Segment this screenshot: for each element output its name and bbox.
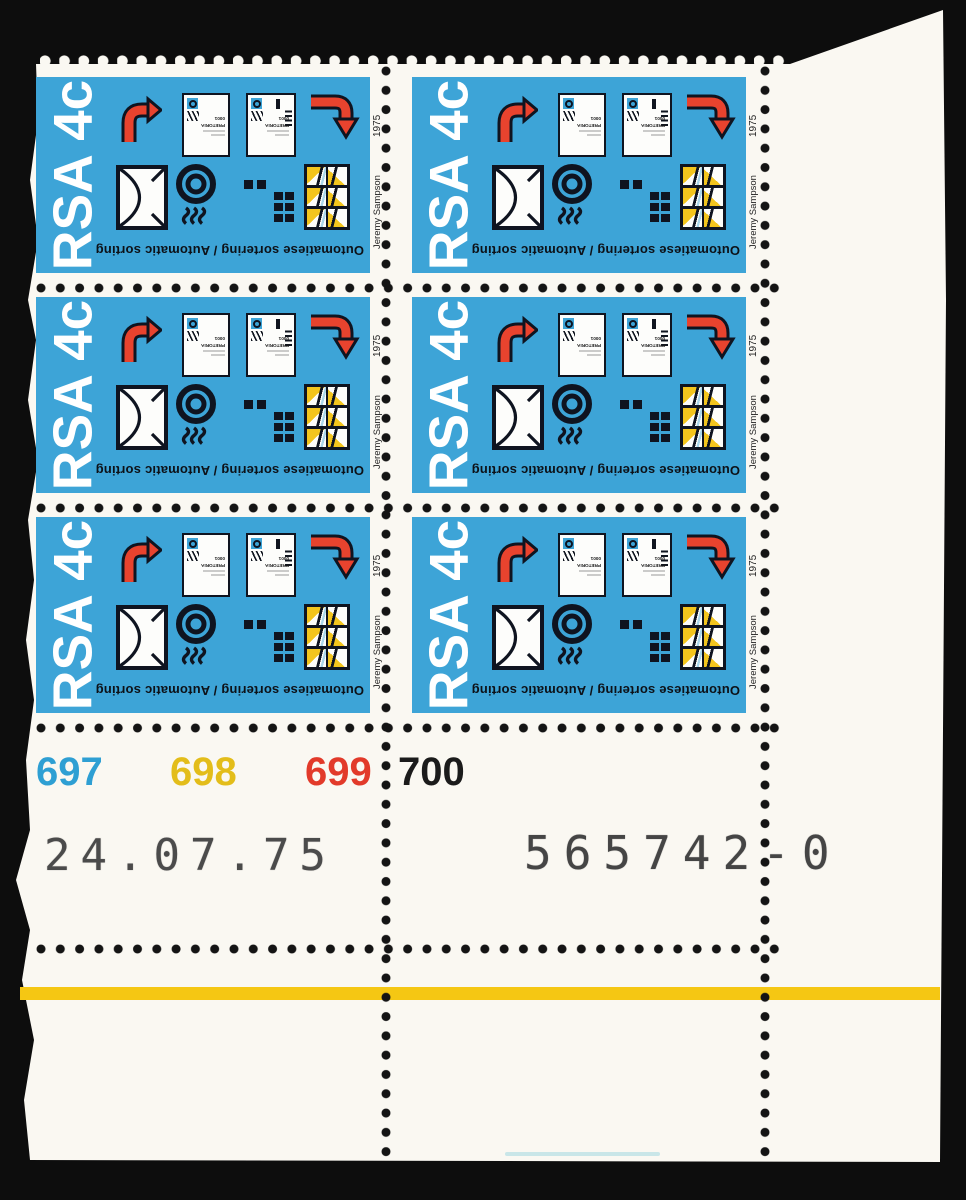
stamp-cell: RSA 4c PRETORIA 0001: [36, 297, 388, 495]
stamp-block: RSA 4c PRETORIA 0001: [0, 0, 966, 1200]
address-line: [651, 355, 665, 357]
addressed-envelope-icon: PRETORIA 0001: [558, 533, 606, 597]
address-line: [651, 135, 665, 137]
plate-number-699: 699: [305, 750, 372, 795]
envelope-address: PRETORIA 0001: [191, 333, 225, 359]
stamp: RSA 4c PRETORIA 0001: [412, 297, 746, 493]
sorting-pigeonhole-icon: [304, 384, 350, 450]
address-line: [579, 131, 601, 133]
plate-number-697: 697: [36, 750, 103, 795]
stamp: RSA 4c PRETORIA 0001: [412, 517, 746, 713]
perforation-row: [36, 944, 784, 954]
envelope-stamp-icon: [563, 98, 574, 109]
address-postal-code: 0001: [204, 556, 225, 561]
envelope-address: PRETORIA 0001: [191, 553, 225, 579]
stamp: RSA 4c PRETORIA 0001: [412, 77, 746, 273]
envelope-stamp-icon: [563, 538, 574, 549]
address-line: [587, 355, 601, 357]
turn-down-arrow-icon: [684, 90, 738, 140]
addressed-envelope-icon: PRETORIA 0001: [558, 93, 606, 157]
envelope-address: PRETORIA 0001: [255, 553, 289, 579]
turn-right-arrow-icon: [494, 90, 538, 144]
stamp: RSA 4c PRETORIA 0001: [36, 77, 370, 273]
stamp-year: 1975: [748, 555, 759, 577]
address-line: [275, 575, 289, 577]
denomination-text: RSA 4c: [416, 300, 480, 491]
turn-right-arrow-icon: [118, 530, 162, 584]
address-line: [267, 131, 289, 133]
address-line: [267, 351, 289, 353]
postmark-target-icon: [174, 384, 222, 448]
sorting-bar-icon: [652, 319, 656, 329]
stamp-denomination: RSA 4c: [420, 517, 476, 713]
coded-envelope-icon: PRETORIA 0001: [246, 533, 296, 597]
stamp: RSA 4c PRETORIA 0001: [36, 297, 370, 493]
envelope-back-icon: [116, 605, 168, 670]
stamp-denomination: RSA 4c: [44, 517, 100, 713]
scanner-background: RSA 4c PRETORIA 0001: [0, 0, 966, 1200]
postmark-target-icon: [174, 604, 222, 668]
stamp-cell: RSA 4c PRETORIA 0001: [412, 297, 764, 495]
address-postal-code: 0001: [268, 556, 289, 561]
postmark-target-icon: [550, 164, 598, 228]
addressed-envelope-icon: PRETORIA 0001: [182, 313, 230, 377]
address-line: [267, 571, 289, 573]
sorting-bar-icon: [652, 539, 656, 549]
address-postal-code: 0001: [580, 336, 601, 341]
envelope-address: PRETORIA 0001: [255, 333, 289, 359]
addressed-envelope-icon: PRETORIA 0001: [182, 93, 230, 157]
envelope-address: PRETORIA 0001: [631, 333, 665, 359]
sorting-bar-icon: [276, 539, 280, 549]
envelope-address: PRETORIA 0001: [631, 553, 665, 579]
address-line: [203, 351, 225, 353]
perforation-row: [36, 503, 784, 513]
address-line: [579, 351, 601, 353]
stamp-year: 1975: [748, 335, 759, 357]
address-city: PRETORIA: [268, 123, 289, 128]
perforation-row: [36, 723, 784, 733]
code-dots-icon: [620, 400, 642, 409]
stamp-cell: RSA 4c PRETORIA 0001: [36, 77, 388, 275]
turn-down-arrow-icon: [684, 310, 738, 360]
postmark-target-icon: [550, 604, 598, 668]
stamp-caption: Outomatiese sortering / Automatic sortin…: [102, 243, 364, 258]
stamp-denomination: RSA 4c: [44, 77, 100, 273]
code-grid-icon: [274, 192, 294, 222]
code-grid-icon: [274, 632, 294, 662]
address-line: [203, 131, 225, 133]
address-line: [643, 351, 665, 353]
turn-down-arrow-icon: [684, 530, 738, 580]
coded-envelope-icon: PRETORIA 0001: [246, 313, 296, 377]
envelope-stamp-icon: [627, 538, 638, 549]
address-city: PRETORIA: [644, 343, 665, 348]
stamp-cell: RSA 4c PRETORIA 0001: [412, 517, 764, 715]
addressed-envelope-icon: PRETORIA 0001: [558, 313, 606, 377]
envelope-back-icon: [492, 385, 544, 450]
envelope-address: PRETORIA 0001: [631, 113, 665, 139]
turn-right-arrow-icon: [118, 310, 162, 364]
address-postal-code: 0001: [580, 116, 601, 121]
coded-envelope-icon: PRETORIA 0001: [622, 533, 672, 597]
stamp-designer: Jeremy Sampson: [748, 175, 759, 249]
sorting-pigeonhole-icon: [680, 604, 726, 670]
envelope-stamp-icon: [187, 318, 198, 329]
address-line: [651, 575, 665, 577]
envelope-address: PRETORIA 0001: [567, 113, 601, 139]
address-city: PRETORIA: [268, 343, 289, 348]
ink-smudge: [505, 1152, 660, 1156]
stamp-caption: Outomatiese sortering / Automatic sortin…: [102, 463, 364, 478]
address-postal-code: 0001: [644, 556, 665, 561]
envelope-address: PRETORIA 0001: [255, 113, 289, 139]
stamp-denomination: RSA 4c: [44, 297, 100, 493]
envelope-stamp-icon: [563, 318, 574, 329]
envelope-stamp-icon: [187, 538, 198, 549]
address-line: [211, 355, 225, 357]
address-city: PRETORIA: [580, 343, 601, 348]
sorting-bar-icon: [276, 99, 280, 109]
address-line: [211, 575, 225, 577]
turn-down-arrow-icon: [308, 530, 362, 580]
sorting-pigeonhole-icon: [680, 164, 726, 230]
denomination-text: RSA 4c: [416, 520, 480, 711]
print-date: 24.07.75: [44, 830, 336, 881]
address-city: PRETORIA: [204, 563, 225, 568]
code-grid-icon: [274, 412, 294, 442]
stamp-designer: Jeremy Sampson: [748, 395, 759, 469]
sorting-pigeonhole-icon: [304, 604, 350, 670]
stamp-denomination: RSA 4c: [420, 77, 476, 273]
address-postal-code: 0001: [204, 116, 225, 121]
address-postal-code: 0001: [644, 336, 665, 341]
address-postal-code: 0001: [644, 116, 665, 121]
cylinder-control-number: 565742-0: [524, 826, 842, 880]
address-line: [275, 355, 289, 357]
address-city: PRETORIA: [644, 123, 665, 128]
envelope-back-icon: [492, 605, 544, 670]
envelope-stamp-icon: [627, 318, 638, 329]
code-grid-icon: [650, 412, 670, 442]
address-line: [211, 135, 225, 137]
turn-right-arrow-icon: [494, 310, 538, 364]
stamp-cell: RSA 4c PRETORIA 0001: [412, 77, 764, 275]
envelope-address: PRETORIA 0001: [567, 333, 601, 359]
envelope-stamp-icon: [251, 98, 262, 109]
code-grid-icon: [650, 192, 670, 222]
envelope-stamp-icon: [627, 98, 638, 109]
stamp-caption: Outomatiese sortering / Automatic sortin…: [478, 683, 740, 698]
address-city: PRETORIA: [204, 123, 225, 128]
envelope-address: PRETORIA 0001: [191, 113, 225, 139]
code-grid-icon: [650, 632, 670, 662]
envelope-back-icon: [116, 165, 168, 230]
address-postal-code: 0001: [204, 336, 225, 341]
envelope-address: PRETORIA 0001: [567, 553, 601, 579]
code-dots-icon: [620, 620, 642, 629]
address-city: PRETORIA: [268, 563, 289, 568]
postmark-target-icon: [174, 164, 222, 228]
perforation-row: [36, 283, 784, 293]
address-line: [587, 575, 601, 577]
address-postal-code: 0001: [268, 336, 289, 341]
code-dots-icon: [244, 400, 266, 409]
turn-right-arrow-icon: [118, 90, 162, 144]
stamp-caption: Outomatiese sortering / Automatic sortin…: [478, 463, 740, 478]
stamp-denomination: RSA 4c: [420, 297, 476, 493]
sorting-bar-icon: [652, 99, 656, 109]
denomination-text: RSA 4c: [40, 300, 104, 491]
addressed-envelope-icon: PRETORIA 0001: [182, 533, 230, 597]
denomination-text: RSA 4c: [40, 80, 104, 271]
turn-down-arrow-icon: [308, 310, 362, 360]
address-line: [643, 131, 665, 133]
coded-envelope-icon: PRETORIA 0001: [622, 313, 672, 377]
coded-envelope-icon: PRETORIA 0001: [246, 93, 296, 157]
plate-number-700: 700: [398, 750, 465, 795]
turn-down-arrow-icon: [308, 90, 362, 140]
code-dots-icon: [620, 180, 642, 189]
turn-right-arrow-icon: [494, 530, 538, 584]
address-line: [203, 571, 225, 573]
address-line: [643, 571, 665, 573]
stamp-caption: Outomatiese sortering / Automatic sortin…: [102, 683, 364, 698]
perforation-column: [381, 66, 391, 1158]
yellow-registration-band: [20, 987, 940, 1000]
address-line: [579, 571, 601, 573]
denomination-text: RSA 4c: [40, 520, 104, 711]
plate-number-698: 698: [170, 750, 237, 795]
address-city: PRETORIA: [644, 563, 665, 568]
coded-envelope-icon: PRETORIA 0001: [622, 93, 672, 157]
sorting-pigeonhole-icon: [680, 384, 726, 450]
address-city: PRETORIA: [204, 343, 225, 348]
perforation-column: [760, 66, 770, 1158]
stamp: RSA 4c PRETORIA 0001: [36, 517, 370, 713]
postmark-target-icon: [550, 384, 598, 448]
sorting-bar-icon: [276, 319, 280, 329]
stamp-year: 1975: [748, 115, 759, 137]
envelope-back-icon: [492, 165, 544, 230]
address-postal-code: 0001: [580, 556, 601, 561]
envelope-stamp-icon: [187, 98, 198, 109]
address-postal-code: 0001: [268, 116, 289, 121]
sorting-pigeonhole-icon: [304, 164, 350, 230]
address-city: PRETORIA: [580, 123, 601, 128]
address-line: [275, 135, 289, 137]
address-line: [587, 135, 601, 137]
code-dots-icon: [244, 620, 266, 629]
stamp-caption: Outomatiese sortering / Automatic sortin…: [478, 243, 740, 258]
envelope-stamp-icon: [251, 318, 262, 329]
address-city: PRETORIA: [580, 563, 601, 568]
stamp-designer: Jeremy Sampson: [748, 615, 759, 689]
envelope-stamp-icon: [251, 538, 262, 549]
stamp-cell: RSA 4c PRETORIA 0001: [36, 517, 388, 715]
code-dots-icon: [244, 180, 266, 189]
envelope-back-icon: [116, 385, 168, 450]
denomination-text: RSA 4c: [416, 80, 480, 271]
